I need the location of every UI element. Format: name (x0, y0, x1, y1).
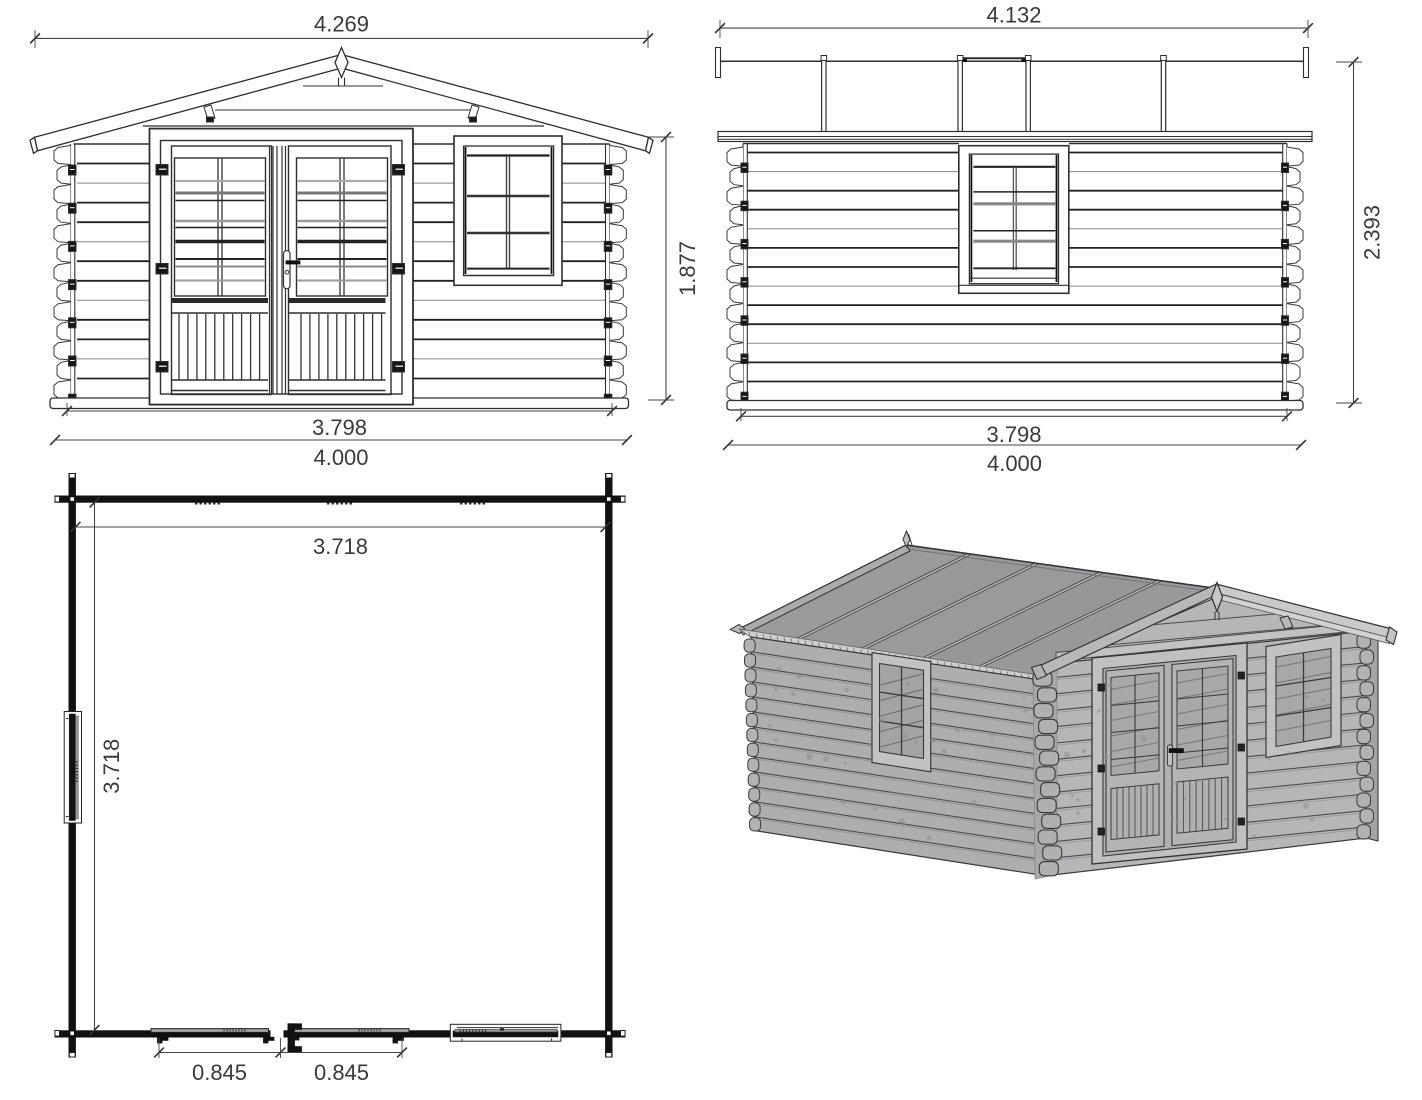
svg-text:2.393: 2.393 (1360, 205, 1385, 260)
svg-text:3.718: 3.718 (99, 739, 124, 794)
svg-text:4.000: 4.000 (987, 451, 1042, 476)
svg-text:0.845: 0.845 (192, 1060, 247, 1085)
svg-text:3.798: 3.798 (986, 422, 1041, 447)
svg-text:4.132: 4.132 (986, 3, 1041, 28)
svg-text:4.000: 4.000 (313, 445, 368, 470)
svg-text:0.845: 0.845 (314, 1060, 369, 1085)
svg-text:3.798: 3.798 (312, 415, 367, 440)
svg-text:4.269: 4.269 (314, 12, 369, 37)
svg-text:3.718: 3.718 (313, 534, 368, 559)
svg-text:1.877: 1.877 (675, 241, 700, 296)
